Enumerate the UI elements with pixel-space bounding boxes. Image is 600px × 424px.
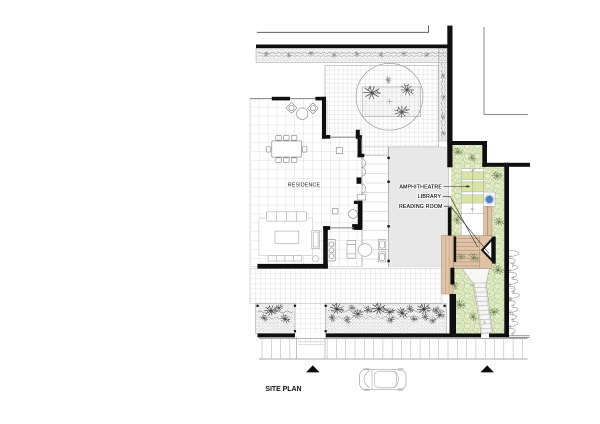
svg-text:UP: UP (470, 169, 474, 173)
svg-text:RESIDENCE: RESIDENCE (288, 182, 321, 188)
svg-text:SITE PLAN: SITE PLAN (265, 386, 301, 393)
svg-text:LIBRARY: LIBRARY (418, 194, 442, 200)
svg-text:AMPHITHEATRE: AMPHITHEATRE (399, 184, 442, 190)
svg-text:READING ROOM: READING ROOM (399, 204, 443, 210)
svg-text:Dn: Dn (471, 283, 475, 287)
svg-text:Dn: Dn (471, 207, 475, 211)
